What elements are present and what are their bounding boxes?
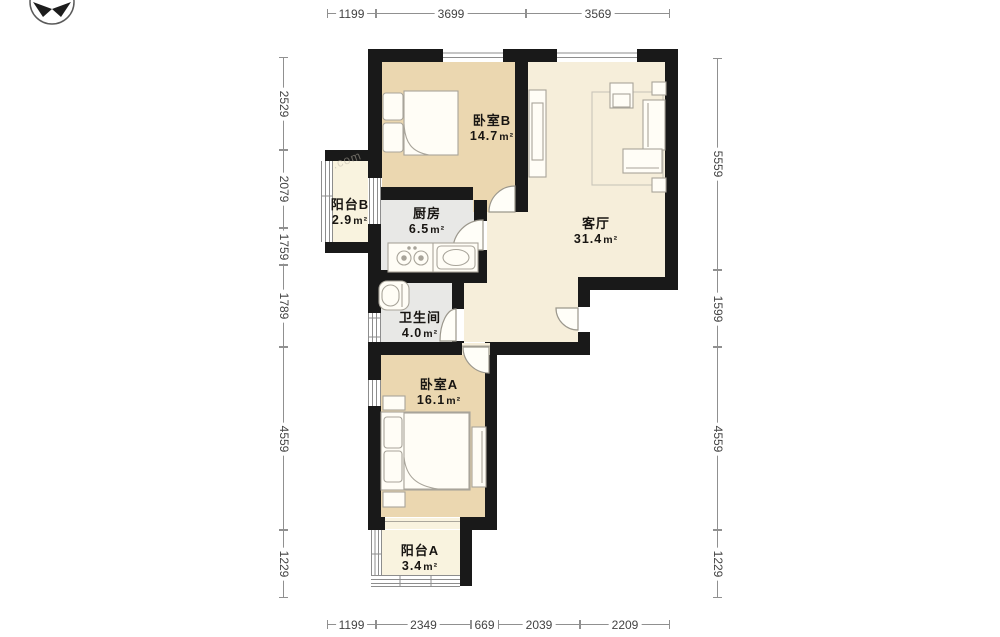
sofa-chaise-icon	[623, 149, 662, 173]
wall-balconyb-bottom	[325, 242, 376, 253]
wall-balconya-right	[460, 530, 472, 586]
wardrobe-icon	[472, 427, 486, 487]
room-area: 3.4m²	[401, 559, 439, 575]
wall-living-bottom	[578, 277, 678, 290]
room-name: 阳台A	[401, 543, 439, 558]
window-living-top	[557, 49, 637, 62]
dim-right-3: 4559	[713, 347, 722, 530]
dim-top-3: 3569	[526, 9, 670, 18]
room-name: 卧室A	[417, 377, 461, 392]
bed-icon-bedroom-b	[383, 91, 458, 155]
stove-knob	[414, 247, 416, 249]
room-label-kitchen: 厨房 6.5m²	[409, 206, 445, 238]
threshold-balcony-a	[385, 518, 460, 529]
room-label-bathroom: 卫生间 4.0m²	[399, 310, 441, 342]
blanket	[404, 91, 458, 155]
dim-left-4: 1789	[279, 265, 288, 347]
room-name: 阳台B	[331, 197, 369, 212]
dim-left-5: 4559	[279, 347, 288, 530]
sofa-icon	[643, 100, 665, 150]
pillow-icon	[383, 93, 403, 120]
window-bedroom-b-top	[443, 49, 503, 62]
toilet-icon	[379, 281, 409, 310]
dim-left-1: 2529	[279, 57, 288, 150]
dim-left-3: 1759	[279, 228, 288, 265]
floor-plan-page: { "rooms": [ {"name": "卧室B", "area": "14…	[0, 0, 1000, 637]
dim-bottom-2: 2349	[376, 620, 471, 629]
dim-right-4: 1229	[713, 530, 722, 598]
floor-plan-drawing	[0, 0, 1000, 637]
kitchen-counter	[388, 243, 478, 272]
room-fill-hallway-2	[464, 283, 487, 342]
dim-top-2: 3699	[376, 9, 526, 18]
wall-bath-right-upper	[452, 270, 464, 309]
room-name: 卫生间	[399, 310, 441, 325]
nightstand-icon	[383, 396, 405, 410]
wall-bedroomb-living-divider	[515, 49, 528, 212]
wall-bedroomb-bottom	[380, 187, 473, 200]
dim-right-1: 5559	[713, 58, 722, 270]
gap-entry-door	[578, 307, 590, 332]
room-label-balcony-b: 阳台B 2.9m²	[331, 197, 369, 229]
wall-entry-upper	[578, 290, 590, 307]
wall-right	[665, 49, 678, 290]
room-label-bedroom-b: 卧室B 14.7m²	[470, 113, 514, 145]
room-area: 16.1m²	[417, 393, 461, 409]
window-bedroom-a-left	[368, 380, 381, 406]
window-balcony-a-bottom	[371, 575, 460, 587]
blanket	[404, 413, 469, 489]
room-area: 2.9m²	[331, 213, 369, 229]
side-table-icon	[652, 178, 666, 192]
pillow-icon	[383, 123, 403, 152]
window-balcony-b-kitchen	[369, 178, 381, 224]
wall-bedrooma-bottom-right	[460, 517, 497, 530]
stove-burner-dot	[419, 256, 423, 260]
wall-balconyb-divider-stub	[368, 161, 381, 178]
side-table-icon	[652, 82, 666, 95]
dim-top-1: 1199	[327, 9, 376, 18]
room-name: 厨房	[409, 206, 445, 221]
room-area: 4.0m²	[399, 326, 441, 342]
pillow-icon	[384, 451, 402, 482]
stove-knob	[408, 247, 410, 249]
armchair-seat	[613, 94, 630, 107]
dim-bottom-3: 669	[471, 620, 498, 629]
room-name: 客厅	[574, 216, 618, 231]
north-compass-icon	[30, 0, 74, 24]
room-area: 14.7m²	[470, 129, 514, 145]
wall-kitchen-right-upper	[474, 200, 487, 221]
room-label-bedroom-a: 卧室A 16.1m²	[417, 377, 461, 409]
wall-bedrooma-left-lower	[368, 406, 381, 517]
wall-bedrooma-top	[368, 342, 462, 355]
tv-icon	[532, 103, 543, 160]
window-bathroom-left	[368, 313, 381, 342]
toilet-seat	[382, 285, 399, 306]
dim-left-2: 2079	[279, 150, 288, 228]
room-label-balcony-a: 阳台A 3.4m²	[401, 543, 439, 575]
dim-bottom-1: 1199	[327, 620, 376, 629]
dim-bottom-5: 2209	[580, 620, 670, 629]
nightstand-icon	[383, 492, 405, 507]
window-balcony-a-left	[371, 530, 382, 578]
stove-burner-dot	[402, 256, 406, 260]
room-name: 卧室B	[470, 113, 514, 128]
dim-bottom-4: 2039	[498, 620, 580, 629]
room-area: 6.5m²	[409, 222, 445, 238]
dim-left-6: 1229	[279, 530, 288, 598]
pillow-icon	[384, 417, 402, 448]
dim-right-2: 1599	[713, 270, 722, 347]
wall-bedrooma-bottom-left	[368, 517, 385, 530]
room-label-living: 客厅 31.4m²	[574, 216, 618, 248]
bed-icon-bedroom-a	[381, 396, 486, 507]
room-area: 31.4m²	[574, 232, 618, 248]
wall-hall-bottom	[490, 342, 590, 355]
